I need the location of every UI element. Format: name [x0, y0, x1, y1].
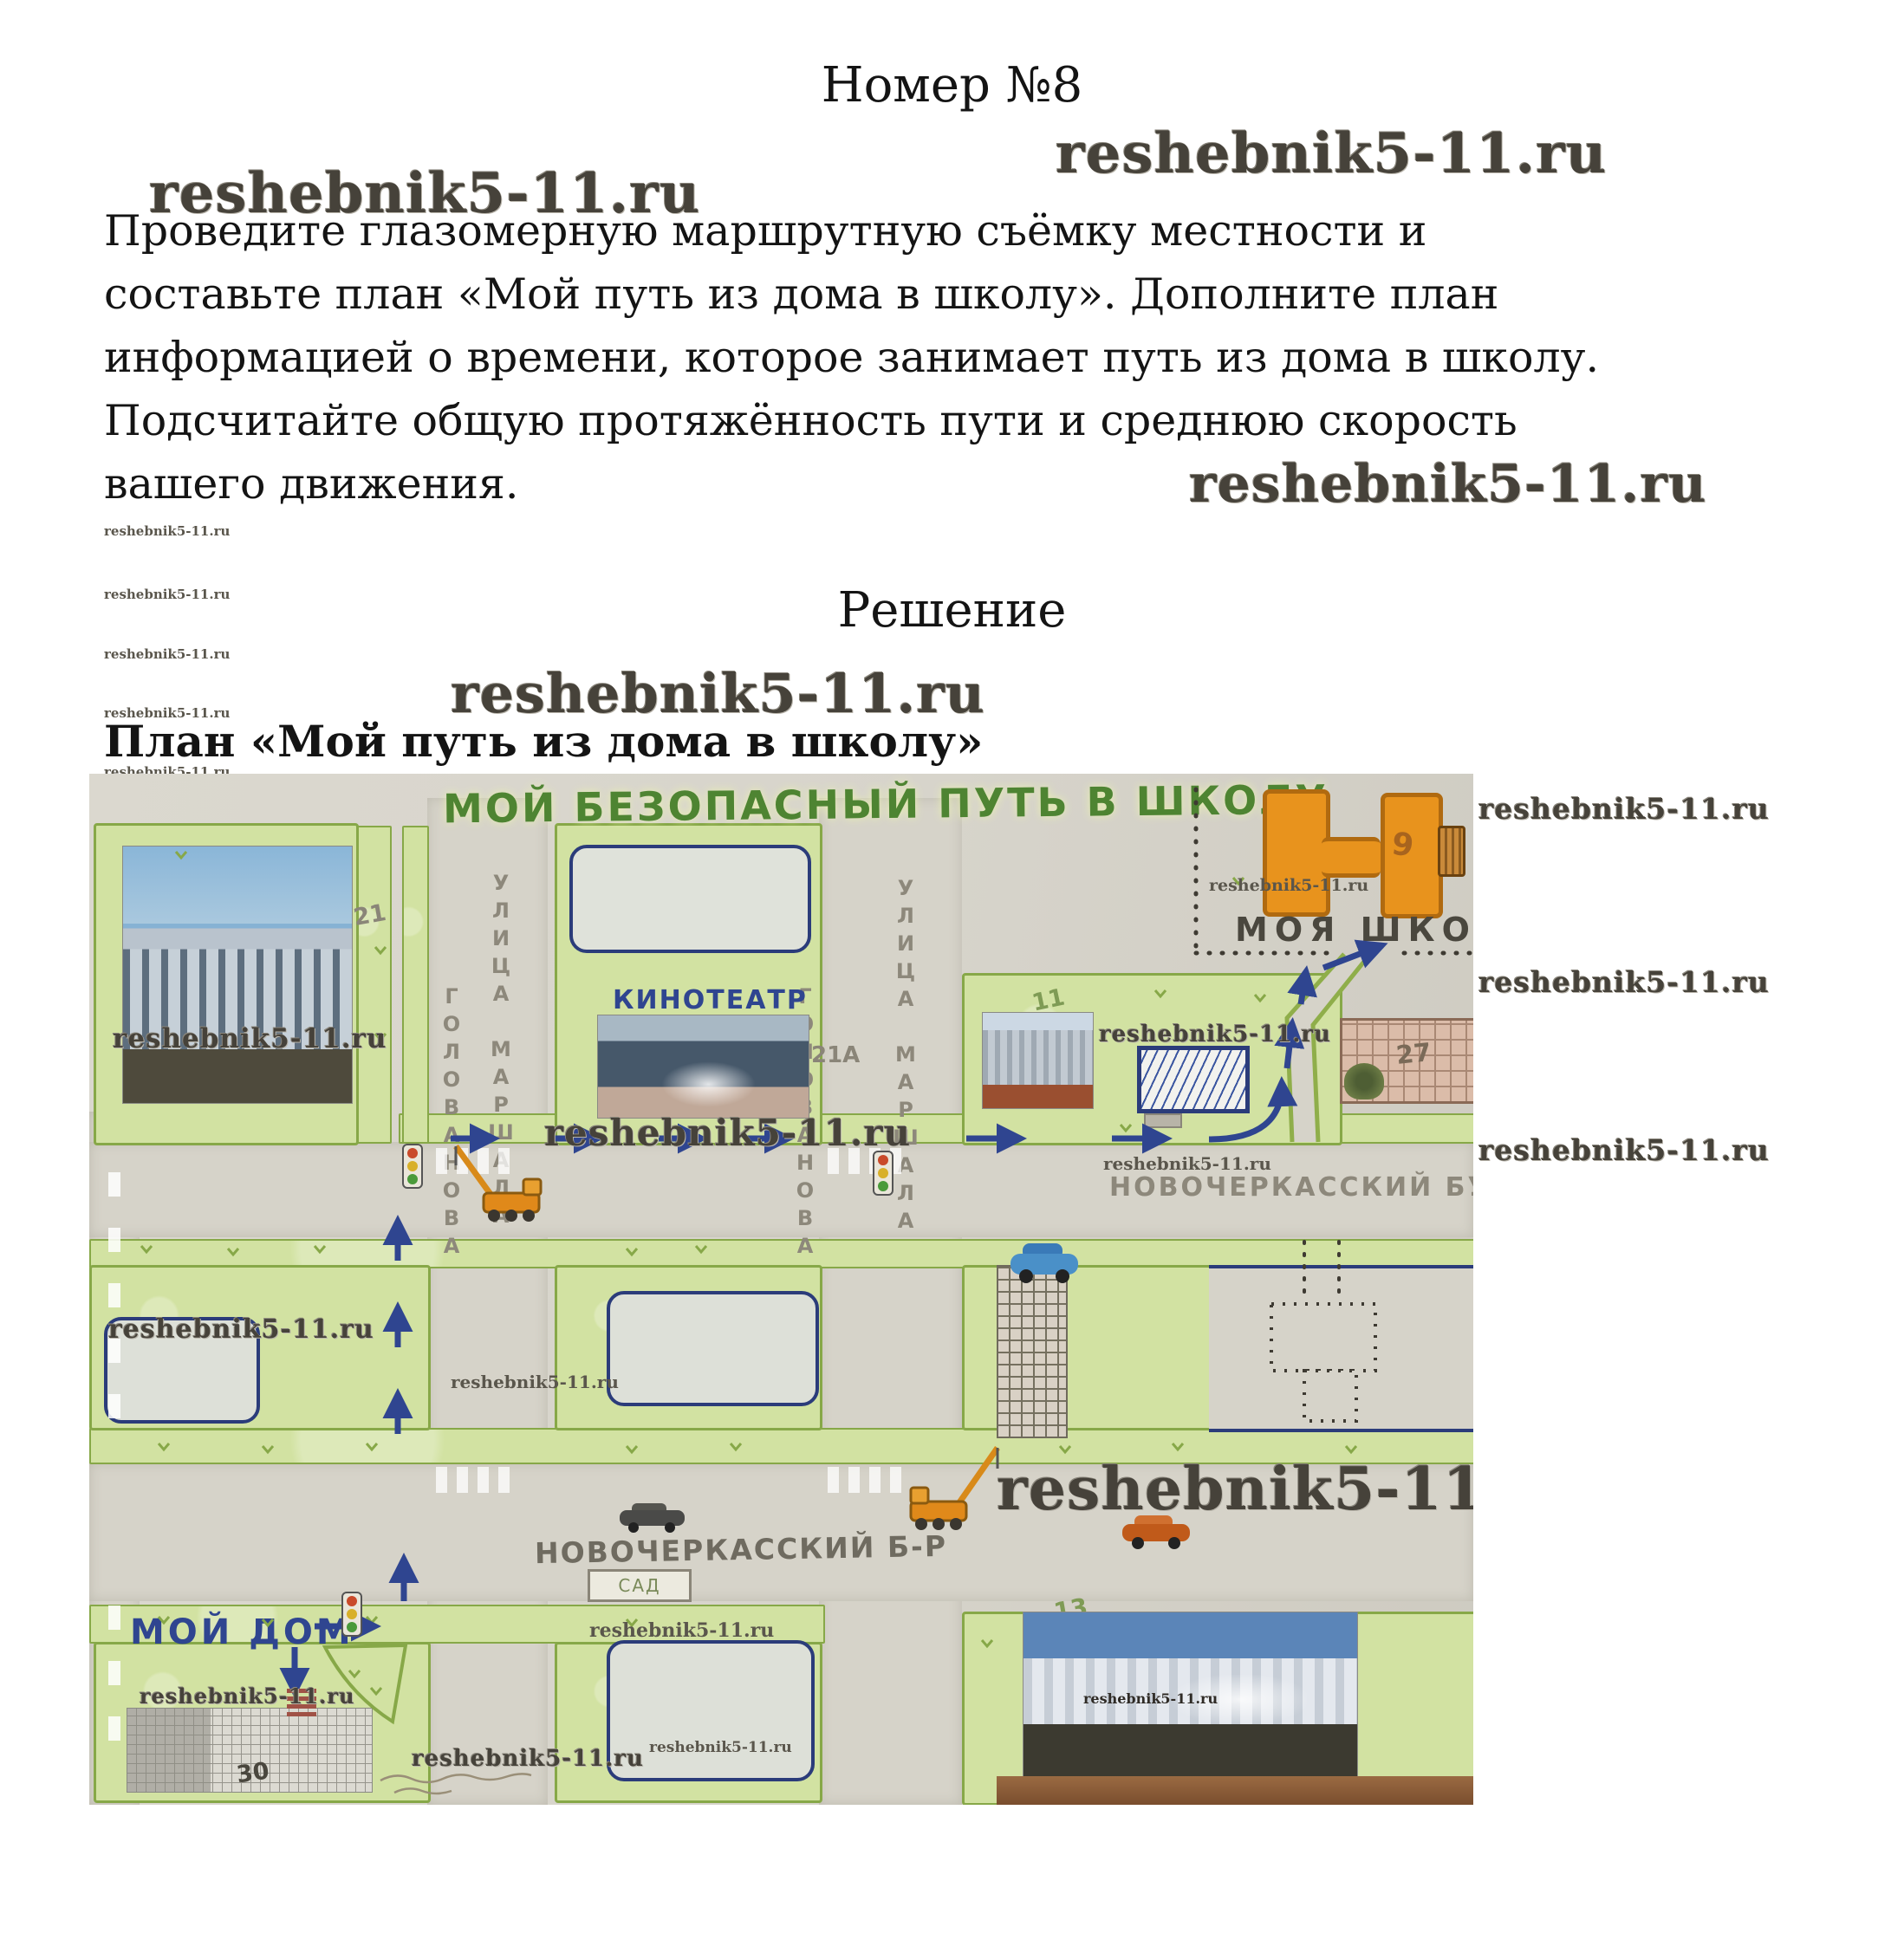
- watermark-map-center: reshebnik5-11.ru: [544, 1112, 911, 1154]
- watermark-right-3: reshebnik5-11.ru: [1478, 1133, 1770, 1167]
- watermark-top-right: reshebnik5-11.ru: [1056, 121, 1607, 186]
- solution-heading: Решение: [0, 582, 1904, 639]
- watermark-map-bulvar: reshebnik5-11.ru: [1103, 1153, 1271, 1174]
- pencil-scribble: [380, 1774, 531, 1794]
- solution-page: Номер №8 reshebnik5-11.ru reshebnik5-11.…: [0, 0, 1904, 1933]
- task-line-4: Подсчитайте общую протяжённость пути и с…: [104, 396, 1517, 445]
- watermark-map-photo21: reshebnik5-11.ru: [113, 1023, 387, 1054]
- watermark-right-2: reshebnik5-11.ru: [1478, 965, 1770, 999]
- watermark-map-c1: reshebnik5-11.ru: [140, 1683, 355, 1709]
- watermark-map-big: reshebnik5-11.ru: [997, 1455, 1473, 1524]
- car-blue: [1010, 1243, 1078, 1283]
- task-line-2: составьте план «Мой путь из дома в школу…: [104, 269, 1498, 319]
- school-path: [1287, 954, 1370, 1142]
- watermark-right-1: reshebnik5-11.ru: [1478, 792, 1770, 826]
- car-dark: [620, 1503, 685, 1533]
- route-map-photo: МОЙ БЕЗОПАСНЫЙ ПУТЬ В ШКОЛУ 21 УЛИЦА МАР…: [89, 774, 1473, 1805]
- watermark-mid-right: reshebnik5-11.ru: [1189, 454, 1707, 515]
- lane-dashes-left-street: [108, 1172, 120, 1741]
- dotted-building: [1271, 1304, 1375, 1371]
- task-line-1: Проведите глазомерную маршрутную съёмку …: [104, 206, 1426, 256]
- watermark-map-13: reshebnik5-11.ru: [1083, 1690, 1218, 1707]
- dotted-building-stub: [1304, 1371, 1356, 1421]
- map-overlay: [89, 774, 1473, 1805]
- task-line-5: вашего движения.: [104, 459, 518, 509]
- watermark-map-v1: reshebnik5-11.ru: [451, 1372, 619, 1392]
- watermark-map-b1: reshebnik5-11.ru: [108, 1314, 374, 1345]
- route-arrows: [295, 945, 1382, 1692]
- traffic-light-3: [342, 1592, 361, 1636]
- crane-2: [911, 1448, 997, 1530]
- page-title: Номер №8: [0, 57, 1904, 114]
- watermark-map-c2: reshebnik5-11.ru: [649, 1739, 792, 1756]
- watermark-map-school: reshebnik5-11.ru: [1209, 876, 1368, 895]
- watermark-map-h2: reshebnik5-11.ru: [589, 1619, 774, 1642]
- traffic-light-2: [874, 1151, 893, 1195]
- watermark-map-c1b: reshebnik5-11.ru: [412, 1746, 644, 1772]
- task-line-3: информацией о времени, которое занимает …: [104, 333, 1599, 382]
- traffic-light-1: [403, 1145, 422, 1188]
- watermark-map-11: reshebnik5-11.ru: [1099, 1022, 1331, 1048]
- watermark-margin-1: reshebnik5-11.ru: [104, 523, 230, 539]
- plan-heading: План «Мой путь из дома в школу»: [104, 716, 983, 767]
- watermark-margin-3: reshebnik5-11.ru: [104, 646, 230, 662]
